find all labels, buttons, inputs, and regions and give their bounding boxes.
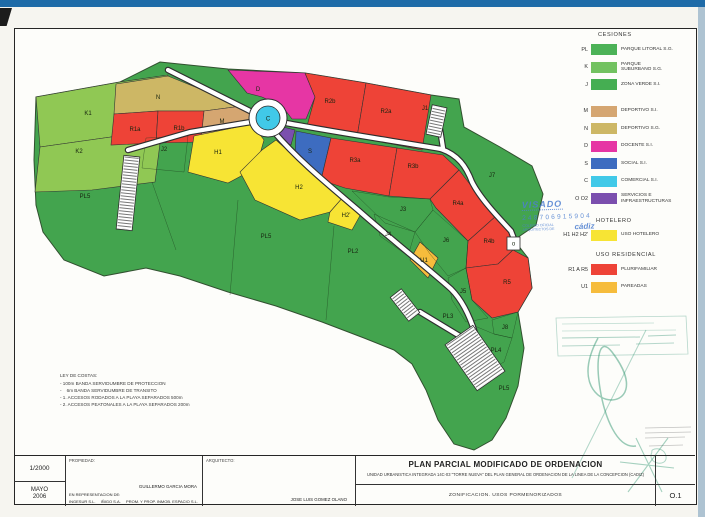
- arquitecto-label: ARQUITECTO:: [206, 458, 235, 463]
- propiedad-name: GUILLERMO GARCIA MORA: [139, 484, 197, 489]
- sheet-title: ZONIFICACION. USOS PORMENORIZADOS: [449, 493, 562, 498]
- scan-top-bar: [0, 0, 705, 7]
- arquitecto-cell: ARQUITECTO: JOSE LUIS GOMEZ OLANO: [203, 456, 356, 506]
- legend-swatch: [591, 106, 617, 117]
- map-label-j6: J6: [443, 238, 450, 244]
- legend-label: SERVICIOS EINFRAESTRUCTURAS: [621, 193, 671, 204]
- plan-title-cell: PLAN PARCIAL MODIFICADO DE ORDENACION UN…: [356, 456, 656, 484]
- legend-swatch: [591, 123, 617, 134]
- scale-cell: 1/2000: [14, 456, 66, 482]
- propiedad-cell: PROPIEDAD: GUILLERMO GARCIA MORA EN REPR…: [66, 456, 203, 506]
- map-label-r1b: R1b: [173, 126, 185, 132]
- stamp-mark: [645, 427, 691, 446]
- map-label-k1: K1: [84, 111, 92, 117]
- map-label-j2: J2: [161, 147, 168, 153]
- sheet-number-cell: O.1: [656, 484, 695, 506]
- map-label-pl3: PL3: [443, 314, 454, 320]
- legend-code: H1 H2 H2': [552, 232, 588, 238]
- map-label-j7: J7: [489, 173, 496, 179]
- map-label-r2b: R2b: [324, 99, 336, 105]
- legend-swatch: [591, 193, 617, 204]
- ley-lines: - 100m BANDA SERVIDUMBRE DE PROTECCION- …: [60, 380, 190, 408]
- legend-row: JZONA VERDE S.I.: [552, 76, 695, 94]
- map-label-j8: J8: [502, 325, 509, 331]
- legend-code: D: [552, 143, 588, 149]
- legend-row: MDEPORTIVO S.I.: [552, 103, 695, 121]
- legend-swatch: [591, 62, 617, 73]
- legend-label: DOCENTE S.I.: [621, 143, 653, 149]
- map-label-m: M: [220, 119, 225, 125]
- legend-label: ZONA VERDE S.I.: [621, 82, 660, 88]
- legend-label: PARQUE LITORAL S.G.: [621, 47, 673, 53]
- legend-row: DDOCENTE S.I.: [552, 138, 695, 156]
- legend-code: PL: [552, 47, 588, 53]
- legend-swatch: [591, 158, 617, 169]
- map-label-pl4: PL4: [491, 348, 502, 354]
- ley-title: LEY DE COSTAS:: [60, 372, 190, 379]
- legend: CESIONESPLPARQUE LITORAL S.G.KPARQUESUBU…: [552, 32, 695, 296]
- legend-code: U1: [552, 284, 588, 290]
- legend-label: DEPORTIVO S.I.: [621, 108, 658, 114]
- legend-swatch: [591, 141, 617, 152]
- legend-swatch: [591, 44, 617, 55]
- date-year: 2006: [33, 494, 46, 501]
- company-name: PROM. Y PROP. INMOB. ESPACIO S.L.: [126, 499, 198, 504]
- stamp-mark: [562, 335, 676, 338]
- legend-row: NDEPORTIVO S.G.: [552, 120, 695, 138]
- legend-label: PLURIFAMILIAR: [621, 267, 657, 273]
- plan-sheet: CoK1K2PL5NR1aR1bMDR2bR2aJ1SR3aR3bR4aR4bJ…: [0, 0, 705, 517]
- legend-label: DEPORTIVO S.G.: [621, 126, 660, 132]
- map-label-j4: J4: [385, 232, 392, 238]
- arquitecto-name: JOSE LUIS GOMEZ OLANO: [291, 497, 347, 502]
- plan-subtitle: UNIDAD URBANISTICA INTEGRADA 14C-03 "TOR…: [356, 472, 655, 477]
- legend-swatch: [591, 264, 617, 275]
- legend-code: R1 A R5: [552, 267, 588, 273]
- legend-row: R1 A R5PLURIFAMILIAR: [552, 261, 695, 279]
- legend-code: C: [552, 178, 588, 184]
- map-label-r4b: R4b: [483, 239, 495, 245]
- map-label-n: N: [156, 95, 160, 101]
- title-block: 1/2000 MAYO 2006 PROPIEDAD: GUILLERMO GA…: [14, 455, 695, 506]
- legend-code: N: [552, 126, 588, 132]
- stamp-mark: [588, 338, 636, 446]
- legend-label: USO HOTELERO: [621, 232, 659, 238]
- legend-row: CCOMERCIAL S.I.: [552, 173, 695, 191]
- map-label-pl2: PL2: [348, 249, 359, 255]
- company-name: IÑIGO S.A.: [101, 499, 121, 504]
- legend-swatch: [591, 79, 617, 90]
- legend-swatch: [591, 282, 617, 293]
- legend-row: O O2SERVICIOS EINFRAESTRUCTURAS: [552, 190, 695, 208]
- ley-line: - 100m BANDA SERVIDUMBRE DE PROTECCION: [60, 380, 190, 387]
- stamp-mark: [556, 316, 688, 356]
- map-label-r4a: R4a: [452, 201, 464, 207]
- map-label-r5: R5: [503, 280, 511, 286]
- legend-row: U1PAREADAS: [552, 279, 695, 297]
- legend-label: COMERCIAL S.I.: [621, 178, 658, 184]
- date-cell: MAYO 2006: [14, 482, 66, 506]
- map-label-u1: U1: [420, 258, 428, 264]
- legend-code: M: [552, 108, 588, 114]
- legend-swatch: [591, 176, 617, 187]
- map-label-c: C: [266, 116, 271, 122]
- legend-section-header: USO RESIDENCIAL: [596, 252, 695, 258]
- map-label-s: S: [308, 149, 312, 155]
- legend-code: O O2: [552, 196, 588, 202]
- map-label-h1: H1: [214, 150, 222, 156]
- ley-line: - 1. ACCESOS RODADOS A LA PLAYA SEPARADO…: [60, 394, 190, 401]
- plan-title: PLAN PARCIAL MODIFICADO DE ORDENACION: [356, 460, 655, 469]
- legend-row: KPARQUESUBURBANO S.G.: [552, 59, 695, 77]
- legend-section-header: CESIONES: [598, 32, 695, 38]
- legend-label: PARQUESUBURBANO S.G.: [621, 62, 662, 73]
- propiedad-rep: EN REPRESENTACION DE:: [69, 492, 120, 497]
- map-label-r1a: R1a: [129, 127, 141, 133]
- ley-de-costas-note: LEY DE COSTAS: - 100m BANDA SERVIDUMBRE …: [60, 372, 190, 409]
- map-label-pl5: PL5: [261, 234, 272, 240]
- legend-code: J: [552, 82, 588, 88]
- legend-label: PAREADAS: [621, 284, 647, 290]
- ley-line: - 2. ACCESOS PEATONALES A LA PLAYA SEPAR…: [60, 401, 190, 408]
- stamp-mark: [562, 330, 676, 331]
- map-label-r3a: R3a: [349, 158, 361, 164]
- map-label-d: D: [256, 87, 261, 93]
- propiedad-label: PROPIEDAD:: [69, 458, 95, 463]
- legend-row: SSOCIAL S.I.: [552, 155, 695, 173]
- stamp-mark: [562, 323, 654, 324]
- map-label-k2: K2: [75, 149, 83, 155]
- map-label-j1: J1: [422, 106, 429, 112]
- map-label-h2: H2': [342, 213, 351, 219]
- map-label-pl5: PL5: [499, 386, 510, 392]
- legend-label: SOCIAL S.I.: [621, 161, 647, 167]
- map-label-r2a: R2a: [380, 109, 392, 115]
- legend-row: H1 H2 H2'USO HOTELERO: [552, 227, 695, 245]
- date-month: MAYO: [31, 487, 48, 494]
- legend-section-header: HOTELERO: [596, 218, 695, 224]
- legend-row: PLPARQUE LITORAL S.G.: [552, 41, 695, 59]
- map-label-j5: J5: [460, 289, 467, 295]
- sheet-title-cell: ZONIFICACION. USOS PORMENORIZADOS: [356, 484, 656, 506]
- map-label-h2: H2: [295, 185, 303, 191]
- propiedad-companies: INGESUR S.L.IÑIGO S.A.PROM. Y PROP. INMO…: [69, 499, 198, 504]
- stamp-mark: [562, 343, 674, 346]
- legend-code: K: [552, 64, 588, 70]
- legend-swatch: [591, 230, 617, 241]
- ley-line: - 6m BANDA SERVIDUMBRE DE TRANSITO: [60, 387, 190, 394]
- scan-right-strip: [698, 0, 705, 517]
- map-label-j3: J3: [400, 207, 407, 213]
- map-label-pl5: PL5: [80, 194, 91, 200]
- map-label-r3b: R3b: [407, 164, 419, 170]
- company-name: INGESUR S.L.: [69, 499, 95, 504]
- legend-code: S: [552, 161, 588, 167]
